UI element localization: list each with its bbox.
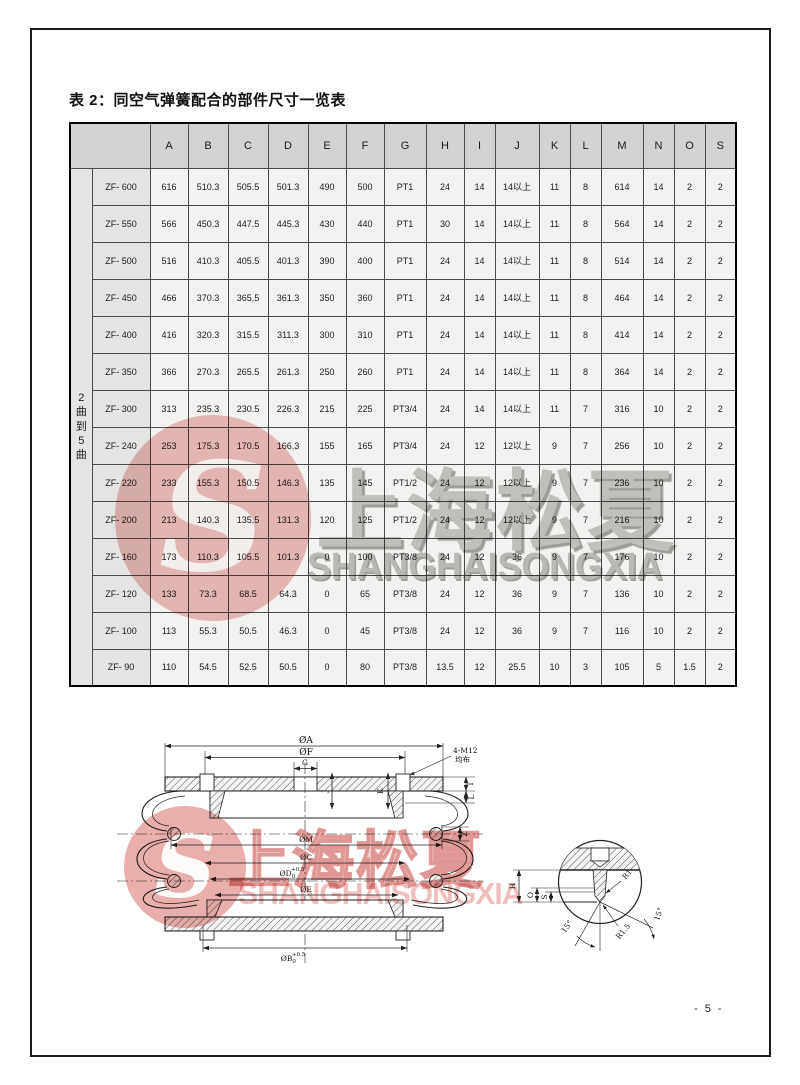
value-cell: 54.5 xyxy=(188,649,228,686)
table-row: ZF- 500516410.3405.5401.3390400PT1241414… xyxy=(70,242,736,279)
value-cell: 0 xyxy=(308,538,346,575)
value-cell: 12以上 xyxy=(495,501,539,538)
value-cell: 253 xyxy=(150,427,188,464)
dim-label-Z: Z xyxy=(460,831,469,836)
value-cell: 0 xyxy=(308,612,346,649)
value-cell: 2 xyxy=(674,464,705,501)
value-cell: 2 xyxy=(674,279,705,316)
value-cell: 310 xyxy=(346,316,384,353)
value-cell: 370.3 xyxy=(188,279,228,316)
model-cell: ZF- 120 xyxy=(92,575,150,612)
value-cell: 166.3 xyxy=(268,427,308,464)
value-cell: 14 xyxy=(464,242,495,279)
value-cell: 25.5 xyxy=(495,649,539,686)
value-cell: 150.5 xyxy=(228,464,268,501)
row-group-label: 2 曲 到 5 曲 xyxy=(70,168,92,686)
value-cell: 155 xyxy=(308,427,346,464)
value-cell: 30 xyxy=(426,205,464,242)
value-cell: 140.3 xyxy=(188,501,228,538)
value-cell: 2 xyxy=(705,205,736,242)
value-cell: 8 xyxy=(570,279,601,316)
dim-label-S: S xyxy=(540,894,549,899)
column-header: M xyxy=(601,123,643,168)
value-cell: 9 xyxy=(539,501,570,538)
value-cell: 136 xyxy=(601,575,643,612)
value-cell: 101.3 xyxy=(268,538,308,575)
value-cell: 2 xyxy=(705,649,736,686)
value-cell: 364 xyxy=(601,353,643,390)
value-cell: 24 xyxy=(426,427,464,464)
table-row: ZF- 9011054.552.550.5080PT3/813.51225.51… xyxy=(70,649,736,686)
model-cell: ZF- 300 xyxy=(92,390,150,427)
value-cell: 14 xyxy=(643,316,674,353)
value-cell: 135 xyxy=(308,464,346,501)
column-header: E xyxy=(308,123,346,168)
value-cell: 7 xyxy=(570,390,601,427)
value-cell: 450.3 xyxy=(188,205,228,242)
value-cell: 145 xyxy=(346,464,384,501)
dim-label-B: ØB0+0.5 xyxy=(281,952,306,965)
value-cell: 466 xyxy=(150,279,188,316)
value-cell: 14 xyxy=(643,205,674,242)
value-cell: 416 xyxy=(150,316,188,353)
value-cell: 65 xyxy=(346,575,384,612)
value-cell: 55.3 xyxy=(188,612,228,649)
value-cell: PT1/2 xyxy=(384,501,426,538)
value-cell: 9 xyxy=(539,538,570,575)
air-spring-cross-section-drawing: ØA ØF G 4-M12 均布 xyxy=(85,733,485,978)
table-row: ZF- 220233155.3150.5146.3135145PT1/22412… xyxy=(70,464,736,501)
column-header: N xyxy=(643,123,674,168)
value-cell: 10 xyxy=(539,649,570,686)
value-cell: 226.3 xyxy=(268,390,308,427)
value-cell: 311.3 xyxy=(268,316,308,353)
value-cell: 261.3 xyxy=(268,353,308,390)
value-cell: 250 xyxy=(308,353,346,390)
value-cell: 2 xyxy=(674,316,705,353)
value-cell: 500 xyxy=(346,168,384,205)
model-cell: ZF- 500 xyxy=(92,242,150,279)
value-cell: 616 xyxy=(150,168,188,205)
value-cell: 24 xyxy=(426,464,464,501)
column-header: I xyxy=(464,123,495,168)
value-cell: 14以上 xyxy=(495,279,539,316)
value-cell: 36 xyxy=(495,575,539,612)
value-cell: 7 xyxy=(570,464,601,501)
value-cell: 113 xyxy=(150,612,188,649)
value-cell: 52.5 xyxy=(228,649,268,686)
value-cell: 50.5 xyxy=(268,649,308,686)
value-cell: 614 xyxy=(601,168,643,205)
bolt-note-line2: 均布 xyxy=(455,754,470,764)
value-cell: 2 xyxy=(705,612,736,649)
value-cell: 10 xyxy=(643,427,674,464)
table-row: ZF- 400416320.3315.5311.3300310PT1241414… xyxy=(70,316,736,353)
value-cell: 447.5 xyxy=(228,205,268,242)
value-cell: 510.3 xyxy=(188,168,228,205)
value-cell: 100 xyxy=(346,538,384,575)
value-cell: 2 xyxy=(705,464,736,501)
page-number: - 5 - xyxy=(694,1003,724,1015)
value-cell: 10 xyxy=(643,575,674,612)
value-cell: 8 xyxy=(570,168,601,205)
value-cell: 320.3 xyxy=(188,316,228,353)
value-cell: 12 xyxy=(464,612,495,649)
document-page: 表 2：同空气弹簧配合的部件尺寸一览表 ABCDEFGHIJKLMNOS 2 曲… xyxy=(0,0,800,1085)
value-cell: 24 xyxy=(426,390,464,427)
angle-label-right: 15° xyxy=(652,906,665,922)
value-cell: 14 xyxy=(464,168,495,205)
value-cell: 365.5 xyxy=(228,279,268,316)
value-cell: 116 xyxy=(601,612,643,649)
value-cell: 2 xyxy=(705,575,736,612)
value-cell: 7 xyxy=(570,501,601,538)
value-cell: 8 xyxy=(570,205,601,242)
value-cell: 390 xyxy=(308,242,346,279)
value-cell: 175.3 xyxy=(188,427,228,464)
value-cell: 10 xyxy=(643,501,674,538)
model-cell: ZF- 550 xyxy=(92,205,150,242)
dim-label-K: K xyxy=(376,788,385,794)
column-header: J xyxy=(495,123,539,168)
parts-table: ABCDEFGHIJKLMNOS 2 曲 到 5 曲ZF- 600616510.… xyxy=(69,122,737,687)
value-cell: PT3/8 xyxy=(384,649,426,686)
value-cell: 7 xyxy=(570,575,601,612)
value-cell: 165 xyxy=(346,427,384,464)
value-cell: 360 xyxy=(346,279,384,316)
value-cell: 2 xyxy=(705,242,736,279)
value-cell: 36 xyxy=(495,612,539,649)
table-row: ZF- 300313235.3230.5226.3215225PT3/42414… xyxy=(70,390,736,427)
value-cell: PT1/2 xyxy=(384,464,426,501)
value-cell: 9 xyxy=(539,575,570,612)
value-cell: 5 xyxy=(643,649,674,686)
value-cell: 256 xyxy=(601,427,643,464)
value-cell: 464 xyxy=(601,279,643,316)
value-cell: 2 xyxy=(705,390,736,427)
column-header: G xyxy=(384,123,426,168)
column-header: A xyxy=(150,123,188,168)
value-cell: 8 xyxy=(570,316,601,353)
column-header: O xyxy=(674,123,705,168)
value-cell: 11 xyxy=(539,168,570,205)
value-cell: 12 xyxy=(464,649,495,686)
value-cell: 12以上 xyxy=(495,464,539,501)
value-cell: 7 xyxy=(570,538,601,575)
value-cell: 2 xyxy=(705,427,736,464)
value-cell: 350 xyxy=(308,279,346,316)
value-cell: 2 xyxy=(705,168,736,205)
corner-cell xyxy=(70,123,150,168)
value-cell: 230.5 xyxy=(228,390,268,427)
value-cell: 24 xyxy=(426,501,464,538)
column-header: L xyxy=(570,123,601,168)
value-cell: PT3/4 xyxy=(384,390,426,427)
value-cell: 566 xyxy=(150,205,188,242)
value-cell: 105.5 xyxy=(228,538,268,575)
model-cell: ZF- 350 xyxy=(92,353,150,390)
dim-label-I: I xyxy=(466,782,475,785)
value-cell: 14以上 xyxy=(495,390,539,427)
table-row: ZF- 160173110.3105.5101.30100PT3/8241236… xyxy=(70,538,736,575)
value-cell: 9 xyxy=(539,464,570,501)
dim-label-D: ØD0+0.5 xyxy=(279,867,305,880)
value-cell: 12以上 xyxy=(495,427,539,464)
value-cell: 3 xyxy=(570,649,601,686)
value-cell: 14 xyxy=(464,353,495,390)
value-cell: 110.3 xyxy=(188,538,228,575)
parts-table-body: 2 曲 到 5 曲ZF- 600616510.3505.5501.3490500… xyxy=(70,168,736,686)
value-cell: 155.3 xyxy=(188,464,228,501)
value-cell: 361.3 xyxy=(268,279,308,316)
model-cell: ZF- 160 xyxy=(92,538,150,575)
value-cell: 8 xyxy=(570,353,601,390)
value-cell: 2 xyxy=(674,390,705,427)
column-header: S xyxy=(705,123,736,168)
value-cell: 366 xyxy=(150,353,188,390)
value-cell: 2 xyxy=(705,353,736,390)
value-cell: 12 xyxy=(464,427,495,464)
value-cell: 14 xyxy=(643,279,674,316)
value-cell: 120 xyxy=(308,501,346,538)
table-row: ZF- 200213140.3135.5131.3120125PT1/22412… xyxy=(70,501,736,538)
value-cell: 2 xyxy=(674,501,705,538)
value-cell: 316 xyxy=(601,390,643,427)
value-cell: 12 xyxy=(464,464,495,501)
bolt-note-line1: 4-M12 xyxy=(453,746,478,755)
value-cell: 2 xyxy=(674,575,705,612)
value-cell: 405.5 xyxy=(228,242,268,279)
model-cell: ZF- 240 xyxy=(92,427,150,464)
dim-label-M: ØM xyxy=(299,835,313,844)
column-header: D xyxy=(268,123,308,168)
dim-label-E: ØE xyxy=(300,885,312,894)
value-cell: 14 xyxy=(464,205,495,242)
value-cell: 45 xyxy=(346,612,384,649)
value-cell: 24 xyxy=(426,168,464,205)
value-cell: 2 xyxy=(705,279,736,316)
value-cell: PT1 xyxy=(384,279,426,316)
value-cell: 14 xyxy=(643,353,674,390)
value-cell: PT1 xyxy=(384,205,426,242)
value-cell: 213 xyxy=(150,501,188,538)
angle-label-left: 15° xyxy=(559,918,574,934)
dim-label-A: ØA xyxy=(299,735,313,746)
value-cell: 173 xyxy=(150,538,188,575)
column-header: B xyxy=(188,123,228,168)
value-cell: PT1 xyxy=(384,353,426,390)
value-cell: 14以上 xyxy=(495,353,539,390)
value-cell: 14 xyxy=(464,279,495,316)
dim-label-L: L xyxy=(467,794,476,799)
table-row: 2 曲 到 5 曲ZF- 600616510.3505.5501.3490500… xyxy=(70,168,736,205)
value-cell: 68.5 xyxy=(228,575,268,612)
value-cell: 225 xyxy=(346,390,384,427)
value-cell: 265.5 xyxy=(228,353,268,390)
value-cell: PT3/8 xyxy=(384,575,426,612)
value-cell: PT1 xyxy=(384,242,426,279)
value-cell: 36 xyxy=(495,538,539,575)
value-cell: 2 xyxy=(705,316,736,353)
value-cell: 440 xyxy=(346,205,384,242)
value-cell: 236 xyxy=(601,464,643,501)
dim-label-C: ØC xyxy=(300,853,312,862)
value-cell: 14 xyxy=(643,168,674,205)
value-cell: 564 xyxy=(601,205,643,242)
value-cell: 400 xyxy=(346,242,384,279)
value-cell: 110 xyxy=(150,649,188,686)
value-cell: 7 xyxy=(570,612,601,649)
value-cell: 313 xyxy=(150,390,188,427)
model-cell: ZF- 200 xyxy=(92,501,150,538)
value-cell: 8 xyxy=(570,242,601,279)
model-cell: ZF- 100 xyxy=(92,612,150,649)
value-cell: 315.5 xyxy=(228,316,268,353)
dim-label-F: ØF xyxy=(299,747,313,758)
value-cell: 9 xyxy=(539,427,570,464)
value-cell: 414 xyxy=(601,316,643,353)
parts-table-head-row: ABCDEFGHIJKLMNOS xyxy=(70,123,736,168)
value-cell: 11 xyxy=(539,279,570,316)
value-cell: 2 xyxy=(674,427,705,464)
value-cell: 216 xyxy=(601,501,643,538)
value-cell: 260 xyxy=(346,353,384,390)
value-cell: 2 xyxy=(674,538,705,575)
value-cell: 12 xyxy=(464,501,495,538)
column-header: F xyxy=(346,123,384,168)
table-row: ZF- 350366270.3265.5261.3250260PT1241414… xyxy=(70,353,736,390)
value-cell: 401.3 xyxy=(268,242,308,279)
value-cell: PT1 xyxy=(384,316,426,353)
value-cell: 135.5 xyxy=(228,501,268,538)
value-cell: 9 xyxy=(539,612,570,649)
column-header: K xyxy=(539,123,570,168)
value-cell: 14以上 xyxy=(495,168,539,205)
value-cell: 10 xyxy=(643,464,674,501)
value-cell: 235.3 xyxy=(188,390,228,427)
table-row: ZF- 550566450.3447.5445.3430440PT1301414… xyxy=(70,205,736,242)
value-cell: 2 xyxy=(705,501,736,538)
value-cell: 516 xyxy=(150,242,188,279)
table-row: ZF- 10011355.350.546.3045PT3/82412369711… xyxy=(70,612,736,649)
value-cell: 131.3 xyxy=(268,501,308,538)
value-cell: 46.3 xyxy=(268,612,308,649)
value-cell: 24 xyxy=(426,316,464,353)
value-cell: 11 xyxy=(539,242,570,279)
model-cell: ZF- 90 xyxy=(92,649,150,686)
dim-label-J: J xyxy=(320,789,329,793)
value-cell: PT3/4 xyxy=(384,427,426,464)
value-cell: 233 xyxy=(150,464,188,501)
value-cell: 300 xyxy=(308,316,346,353)
value-cell: 24 xyxy=(426,612,464,649)
value-cell: 24 xyxy=(426,279,464,316)
value-cell: 14以上 xyxy=(495,242,539,279)
parts-dimension-table: ABCDEFGHIJKLMNOS 2 曲 到 5 曲ZF- 600616510.… xyxy=(69,122,737,687)
table-row: ZF- 12013373.368.564.3065PT3/82412369713… xyxy=(70,575,736,612)
value-cell: 13.5 xyxy=(426,649,464,686)
value-cell: 12 xyxy=(464,538,495,575)
value-cell: 64.3 xyxy=(268,575,308,612)
model-cell: ZF- 400 xyxy=(92,316,150,353)
value-cell: 2 xyxy=(674,205,705,242)
value-cell: 24 xyxy=(426,538,464,575)
model-cell: ZF- 450 xyxy=(92,279,150,316)
detail-view-circle-drawing: H O S R1 R1.5 15° 15° xyxy=(505,818,705,963)
value-cell: 215 xyxy=(308,390,346,427)
model-cell: ZF- 600 xyxy=(92,168,150,205)
value-cell: 14以上 xyxy=(495,205,539,242)
value-cell: 73.3 xyxy=(188,575,228,612)
value-cell: 146.3 xyxy=(268,464,308,501)
value-cell: 80 xyxy=(346,649,384,686)
value-cell: 2 xyxy=(674,242,705,279)
value-cell: 7 xyxy=(570,427,601,464)
page-title: 表 2：同空气弹簧配合的部件尺寸一览表 xyxy=(69,89,346,110)
value-cell: 270.3 xyxy=(188,353,228,390)
dim-label-O: O xyxy=(526,892,535,898)
value-cell: 50.5 xyxy=(228,612,268,649)
value-cell: 0 xyxy=(308,649,346,686)
value-cell: 14 xyxy=(643,242,674,279)
value-cell: 10 xyxy=(643,538,674,575)
value-cell: 176 xyxy=(601,538,643,575)
value-cell: 11 xyxy=(539,205,570,242)
value-cell: 2 xyxy=(674,612,705,649)
value-cell: 12 xyxy=(464,575,495,612)
value-cell: PT3/8 xyxy=(384,612,426,649)
value-cell: 14 xyxy=(464,316,495,353)
value-cell: 11 xyxy=(539,390,570,427)
value-cell: 2 xyxy=(674,168,705,205)
value-cell: 410.3 xyxy=(188,242,228,279)
value-cell: PT1 xyxy=(384,168,426,205)
value-cell: 0 xyxy=(308,575,346,612)
value-cell: 14 xyxy=(464,390,495,427)
value-cell: 1.5 xyxy=(674,649,705,686)
value-cell: 14以上 xyxy=(495,316,539,353)
column-header: H xyxy=(426,123,464,168)
value-cell: 11 xyxy=(539,353,570,390)
value-cell: 10 xyxy=(643,390,674,427)
value-cell: 24 xyxy=(426,242,464,279)
dim-label-H: H xyxy=(508,882,517,889)
value-cell: 2 xyxy=(705,538,736,575)
table-row: ZF- 240253175.3170.5166.3155165PT3/42412… xyxy=(70,427,736,464)
value-cell: 24 xyxy=(426,353,464,390)
value-cell: 2 xyxy=(674,353,705,390)
value-cell: 11 xyxy=(539,316,570,353)
table-row: ZF- 450466370.3365.5361.3350360PT1241414… xyxy=(70,279,736,316)
column-header: C xyxy=(228,123,268,168)
value-cell: 445.3 xyxy=(268,205,308,242)
value-cell: 505.5 xyxy=(228,168,268,205)
value-cell: 125 xyxy=(346,501,384,538)
value-cell: 490 xyxy=(308,168,346,205)
value-cell: 10 xyxy=(643,612,674,649)
value-cell: 430 xyxy=(308,205,346,242)
value-cell: 514 xyxy=(601,242,643,279)
value-cell: PT3/8 xyxy=(384,538,426,575)
value-cell: 501.3 xyxy=(268,168,308,205)
value-cell: 105 xyxy=(601,649,643,686)
model-cell: ZF- 220 xyxy=(92,464,150,501)
value-cell: 24 xyxy=(426,575,464,612)
value-cell: 133 xyxy=(150,575,188,612)
value-cell: 170.5 xyxy=(228,427,268,464)
